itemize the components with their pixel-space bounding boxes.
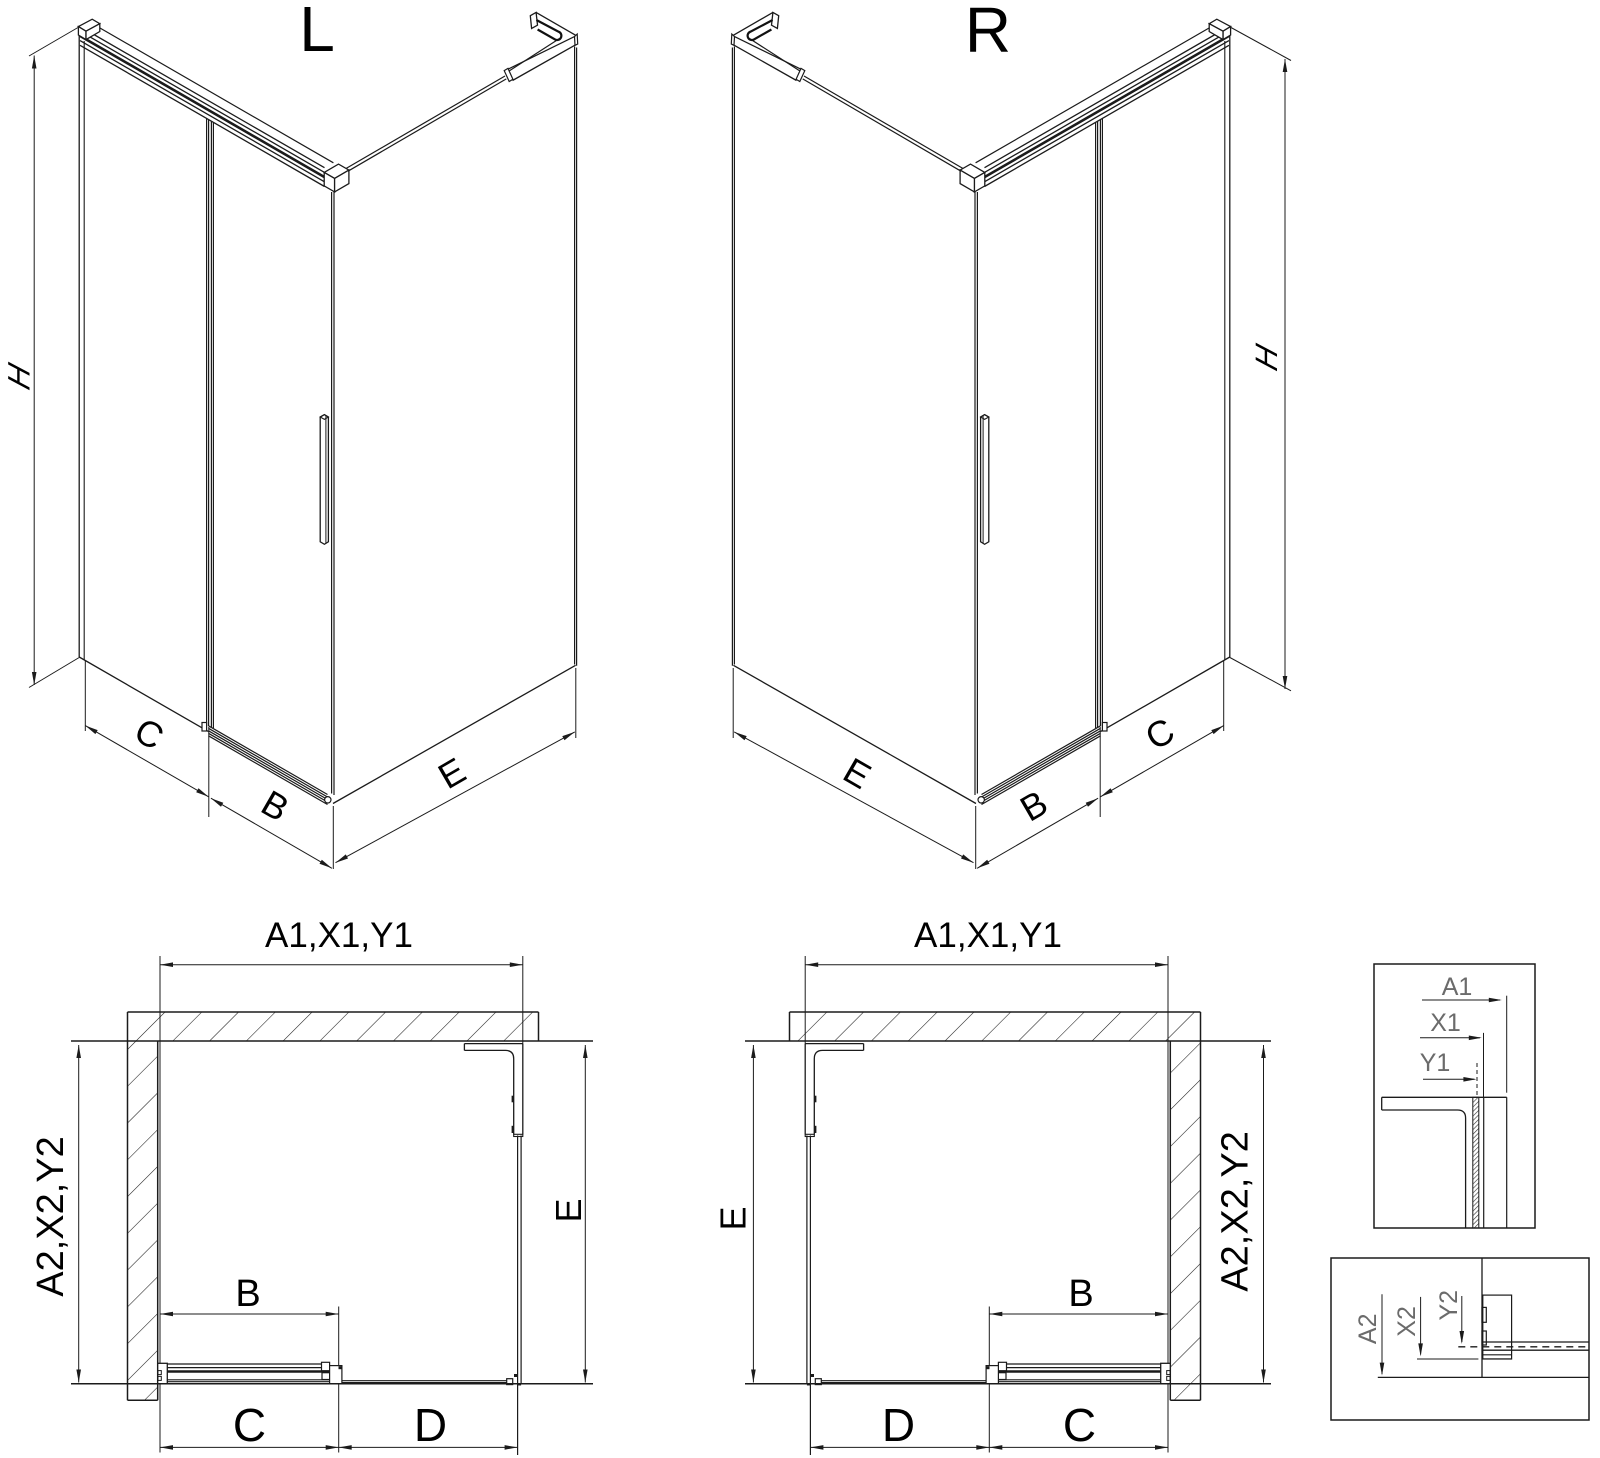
svg-text:C: C	[233, 1399, 266, 1451]
svg-text:A2,X2,Y2: A2,X2,Y2	[1215, 1131, 1257, 1292]
svg-text:A1,X1,Y1: A1,X1,Y1	[265, 916, 413, 955]
svg-text:X1: X1	[1430, 1009, 1461, 1037]
svg-text:C: C	[1063, 1399, 1096, 1451]
svg-text:B: B	[1068, 1273, 1093, 1315]
svg-text:R: R	[965, 0, 1011, 66]
svg-text:L: L	[299, 0, 335, 65]
svg-text:A2,X2,Y2: A2,X2,Y2	[30, 1136, 72, 1297]
svg-text:E: E	[713, 1206, 754, 1230]
svg-text:Y2: Y2	[1435, 1290, 1463, 1321]
svg-text:D: D	[414, 1399, 447, 1451]
svg-text:A2: A2	[1354, 1314, 1382, 1345]
svg-text:A1,X1,Y1: A1,X1,Y1	[914, 916, 1062, 955]
svg-text:B: B	[235, 1273, 260, 1315]
svg-text:A1: A1	[1442, 973, 1473, 1001]
svg-text:E: E	[548, 1198, 589, 1222]
svg-text:D: D	[882, 1399, 915, 1451]
svg-text:Y1: Y1	[1420, 1049, 1451, 1077]
svg-text:X2: X2	[1393, 1306, 1421, 1337]
